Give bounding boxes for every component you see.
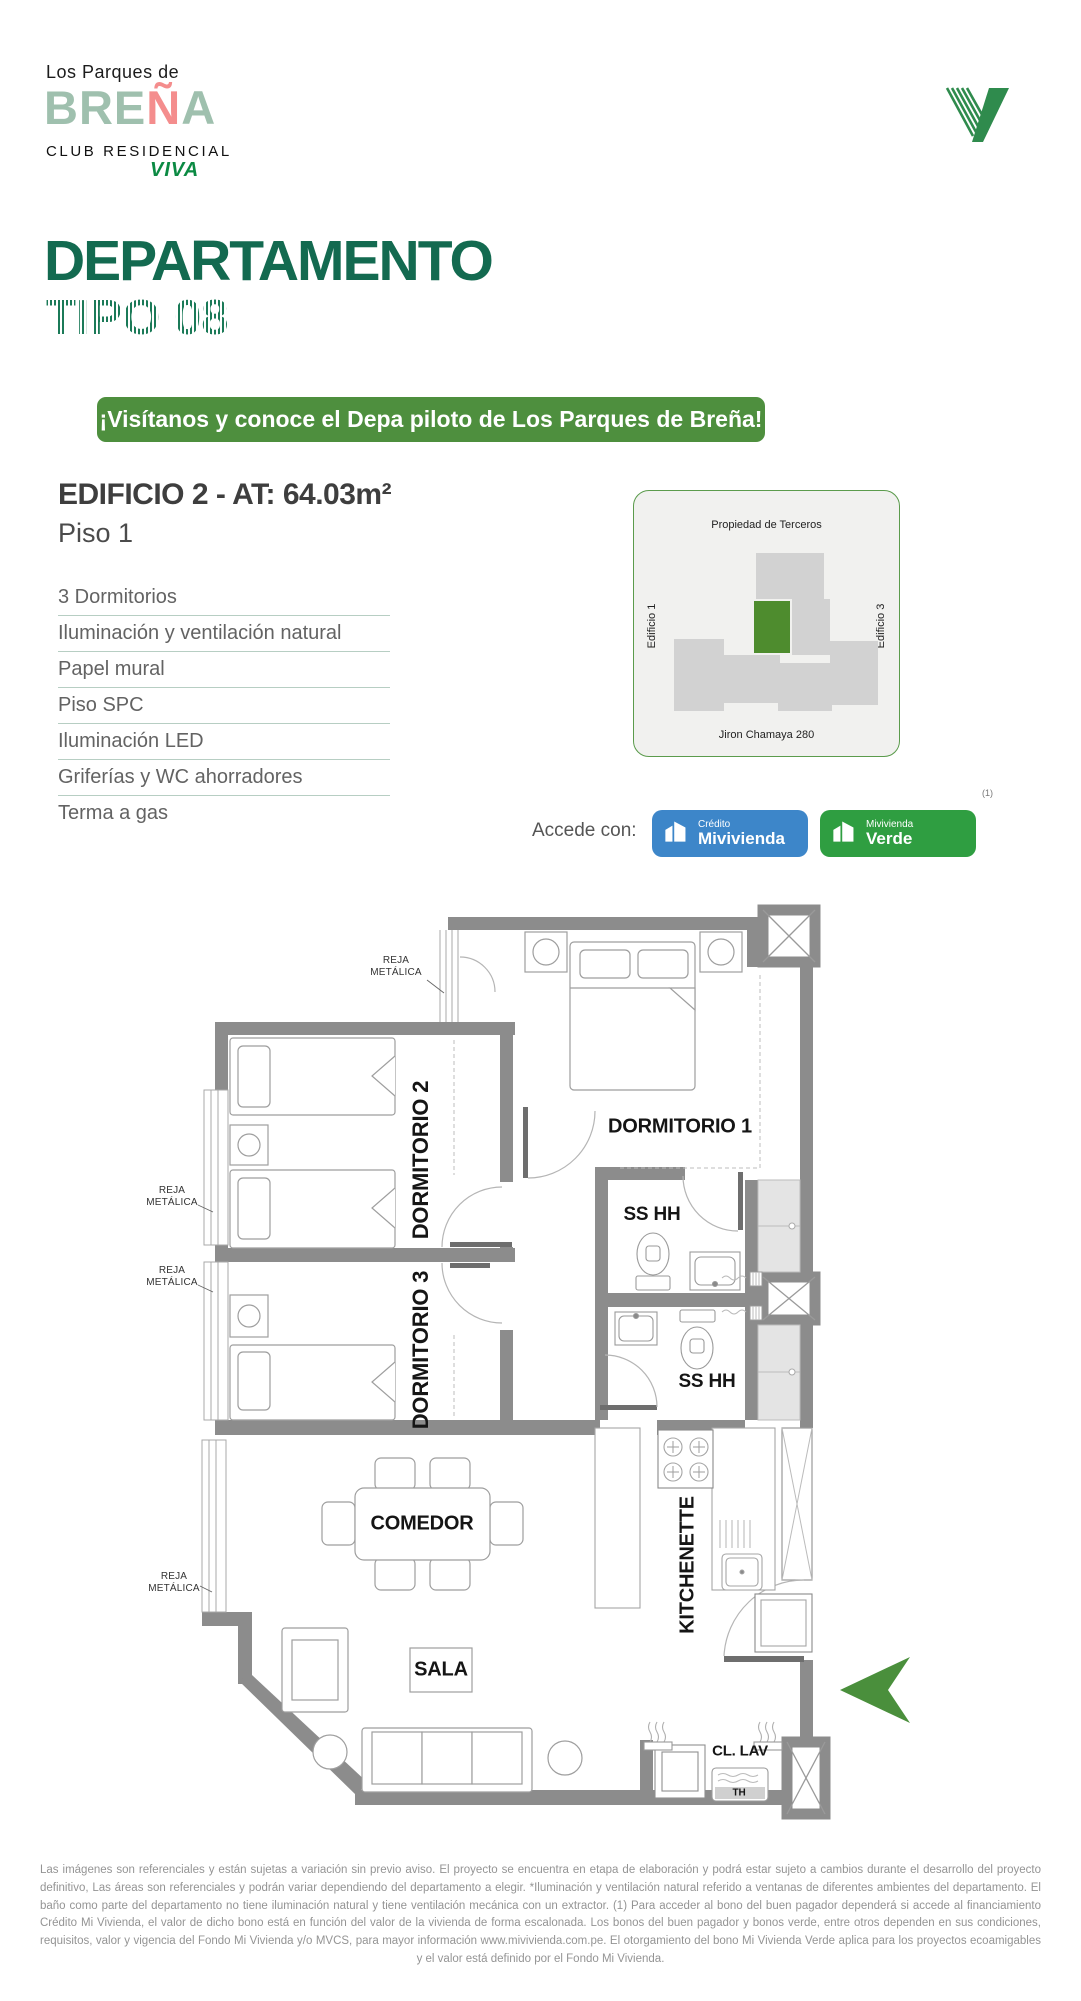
legal-disclaimer: Las imágenes son referenciales y están s… xyxy=(40,1862,1041,1969)
feature-item: Iluminación LED xyxy=(58,724,390,760)
label-th: TH xyxy=(733,1788,746,1799)
feature-item: Papel mural xyxy=(58,652,390,688)
site-map-west-label: Edificio 1 xyxy=(646,604,658,649)
site-map-street-label: Jiron Chamaya 280 xyxy=(719,729,814,741)
room-label-dormitorio1: DORMITORIO 1 xyxy=(608,1116,752,1139)
unit-floor: Piso 1 xyxy=(58,518,133,549)
brand-subtitle: CLUB RESIDENCIAL xyxy=(46,143,232,160)
unit-heading: EDIFICIO 2 - AT: 64.03m² xyxy=(58,478,391,512)
brand-name: BREÑA xyxy=(44,80,216,135)
mivivienda-verde-badge: Mivivienda Verde xyxy=(820,810,976,857)
brand-name-post: A xyxy=(181,81,216,134)
kitchen xyxy=(595,1428,812,1652)
badge-line2: Mivivienda xyxy=(698,830,785,848)
site-map: Propiedad de Terceros Edificio 1 Edifici… xyxy=(633,490,900,757)
room-label-bath1: SS HH xyxy=(623,1204,680,1226)
room-label-dormitorio2: DORMITORIO 2 xyxy=(408,1081,434,1240)
brand-name-enye: Ñ xyxy=(146,81,181,134)
building-block xyxy=(830,641,878,705)
laundry xyxy=(644,1722,782,1801)
feature-item: 3 Dormitorios xyxy=(58,580,390,616)
feature-item: Piso SPC xyxy=(58,688,390,724)
feature-item: Iluminación y ventilación natural xyxy=(58,616,390,652)
mivivienda-house-icon xyxy=(831,818,857,849)
feature-item: Griferías y WC ahorradores xyxy=(58,760,390,796)
building-block xyxy=(778,663,832,711)
brand-name-pre: BRE xyxy=(44,81,146,134)
viva-wordmark: VIVA xyxy=(150,159,199,182)
feature-list: 3 Dormitorios Iluminación y ventilación … xyxy=(58,580,390,831)
promo-banner: ¡Visítanos y conoce el Depa piloto de Lo… xyxy=(97,397,765,442)
badge-line2: Verde xyxy=(866,830,913,848)
page-subtitle: TIPO 08 xyxy=(46,290,228,346)
feature-item: Terma a gas xyxy=(58,796,390,831)
building-block xyxy=(674,639,724,711)
room-label-sala: SALA xyxy=(414,1659,468,1682)
site-map-north-label: Propiedad de Terceros xyxy=(711,519,821,531)
mivivienda-house-icon xyxy=(663,818,689,849)
room-label-comedor: COMEDOR xyxy=(370,1513,473,1536)
building-block xyxy=(722,655,780,703)
reja-metalica-label: REJA METÁLICA xyxy=(139,1571,209,1595)
hatched-column xyxy=(782,1428,812,1580)
highlighted-unit-block xyxy=(754,601,790,653)
furniture xyxy=(230,932,742,1792)
credito-mivivienda-badge: Crédito Mivivienda xyxy=(652,810,808,857)
reja-metalica-label: REJA METÁLICA xyxy=(137,1185,207,1209)
page-title: DEPARTAMENTO xyxy=(44,228,492,294)
viva-v-icon xyxy=(943,86,1017,149)
entry-arrow-icon xyxy=(840,1657,910,1723)
room-label-dormitorio3: DORMITORIO 3 xyxy=(408,1271,434,1430)
floor-plan xyxy=(140,880,940,1830)
building-block xyxy=(792,599,830,655)
reja-metalica-label: REJA METÁLICA xyxy=(137,1265,207,1289)
access-label: Accede con: xyxy=(532,820,637,842)
reja-metalica-label: REJA METÁLICA xyxy=(361,955,431,979)
room-label-cl-lav: CL. LAV xyxy=(712,1743,768,1760)
footnote-marker: (1) xyxy=(982,788,993,798)
room-label-kitchenette: KITCHENETTE xyxy=(677,1496,700,1634)
room-label-bath2: SS HH xyxy=(678,1371,735,1393)
building-block xyxy=(756,553,824,599)
